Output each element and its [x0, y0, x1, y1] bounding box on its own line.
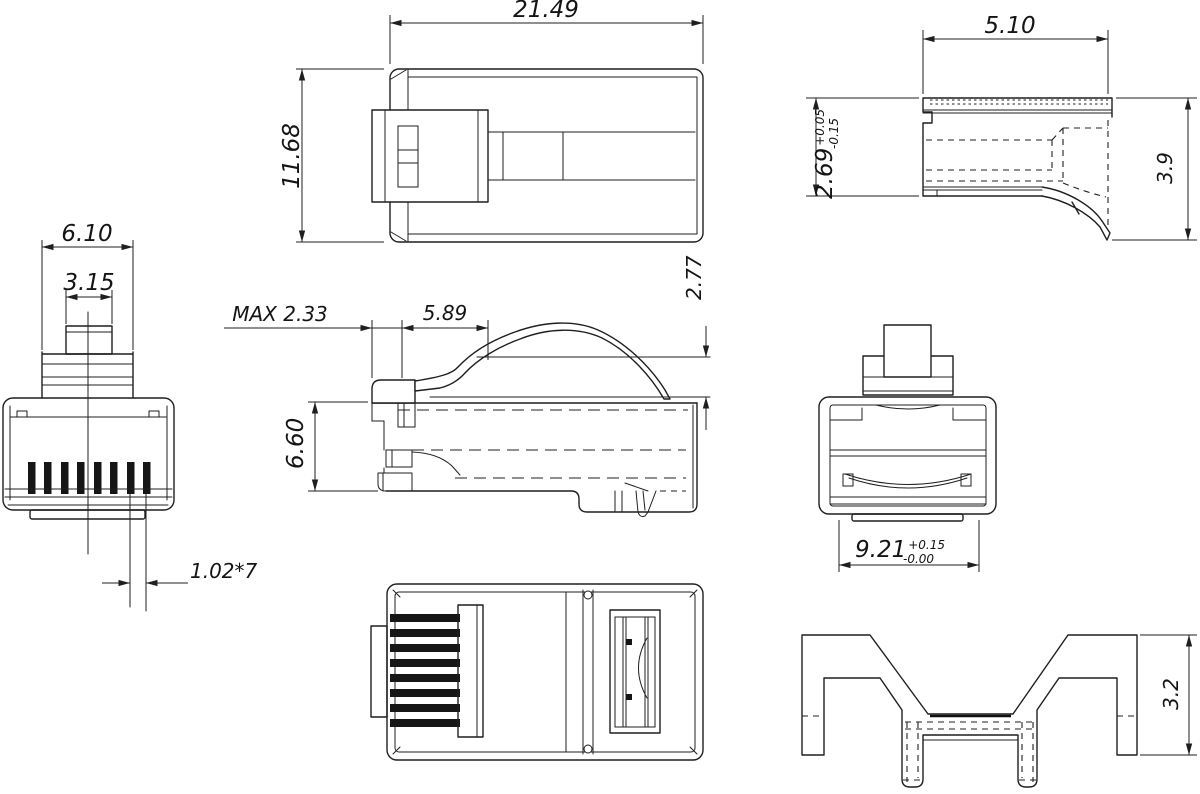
drawing-sheet: 6.10 3.15 1.02*7 21.49 11.68 5.10 2.69+0… [0, 0, 1200, 794]
dim-rear-cavity-width-value: 9.21 [855, 537, 906, 563]
dim-latch-length: 5.10 [984, 13, 1035, 39]
technical-drawing: 6.10 3.15 1.02*7 21.49 11.68 5.10 2.69+0… [0, 0, 1200, 794]
dim-side-body-height: 6.60 [283, 418, 309, 469]
rear-latch-tab [884, 325, 931, 377]
dim-top-length: 21.49 [513, 0, 579, 23]
dim-side-latch-max: MAX 2.33 [232, 302, 328, 326]
dim-side-latch-length: 5.89 [423, 301, 468, 325]
dim-latch-height-tol-minus: -0.15 [827, 118, 841, 149]
dim-latch-overall-height: 3.9 [1153, 152, 1177, 184]
top-latch-block [372, 110, 488, 202]
dim-rear-cavity-tol-plus: +0.15 [908, 538, 945, 552]
dim-rear-cavity-width: 9.21+0.15-0.00 [855, 537, 945, 566]
dim-front-pin-pitch: 1.02*7 [190, 559, 258, 583]
dim-latch-height: 2.69+0.05-0.15 [812, 109, 841, 199]
dim-side-lever-rise: 2.77 [682, 255, 706, 300]
dim-top-width: 11.68 [279, 123, 305, 189]
dim-latch-height-tol-plus: +0.05 [813, 109, 827, 146]
dim-front-stem-width: 6.10 [61, 221, 112, 247]
dim-latch-height-value: 2.69 [812, 148, 838, 199]
dim-rear-cavity-tol-minus: -0.00 [903, 552, 934, 566]
dim-strain-relief-height: 3.2 [1159, 678, 1183, 710]
dim-front-tab-width: 3.15 [63, 270, 114, 296]
side-latch-base [372, 380, 415, 403]
